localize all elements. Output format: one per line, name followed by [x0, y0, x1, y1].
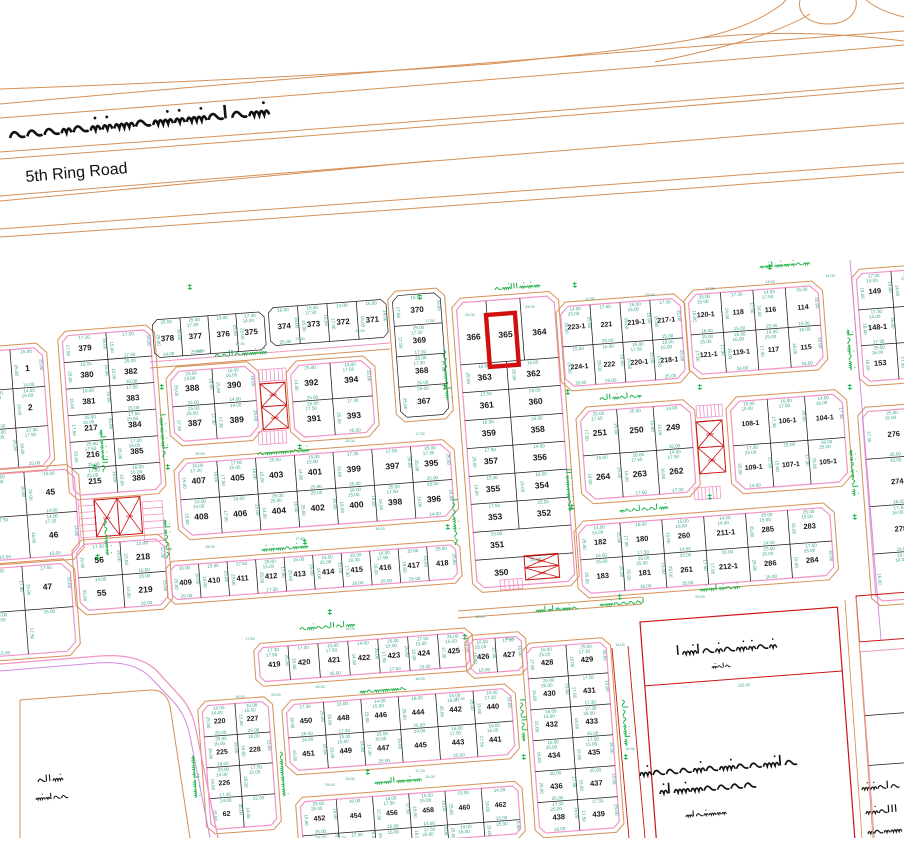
svg-text:25.00: 25.00	[336, 412, 342, 424]
svg-text:16.00: 16.00	[536, 751, 542, 763]
svg-text:25.00: 25.00	[349, 427, 361, 433]
svg-text:15.00: 15.00	[798, 320, 810, 326]
svg-text:15.00: 15.00	[457, 790, 469, 796]
svg-text:17.30: 17.30	[376, 809, 382, 821]
svg-text:16.00: 16.00	[675, 523, 687, 529]
svg-text:14.00: 14.00	[163, 351, 175, 357]
svg-text:363: 363	[477, 372, 492, 383]
svg-text:250: 250	[629, 424, 644, 435]
svg-text:25.00: 25.00	[402, 398, 408, 410]
svg-text:17.30: 17.30	[771, 416, 777, 428]
svg-text:17.30: 17.30	[415, 432, 425, 436]
svg-text:356: 356	[532, 452, 547, 463]
svg-text:25.00: 25.00	[819, 444, 831, 450]
svg-text:15.00: 15.00	[109, 341, 115, 353]
svg-text:261: 261	[680, 565, 693, 575]
svg-text:413: 413	[293, 569, 306, 579]
svg-text:17.30: 17.30	[759, 345, 765, 357]
svg-text:15.00: 15.00	[322, 743, 328, 755]
svg-text:379: 379	[78, 343, 93, 353]
svg-text:260: 260	[677, 531, 690, 541]
svg-text:16.00: 16.00	[202, 576, 208, 588]
svg-text:372: 372	[336, 317, 351, 327]
svg-text:398: 398	[388, 496, 403, 507]
svg-text:25.00: 25.00	[270, 498, 282, 504]
svg-text:16.00: 16.00	[625, 747, 635, 751]
svg-text:276: 276	[887, 429, 900, 439]
svg-text:108-1: 108-1	[741, 420, 759, 428]
svg-text:17.50: 17.50	[351, 832, 363, 838]
svg-text:225: 225	[216, 749, 228, 757]
svg-text:16.00: 16.00	[83, 419, 95, 425]
svg-text:25.00: 25.00	[269, 457, 281, 463]
svg-text:431: 431	[583, 685, 596, 695]
svg-text:263: 263	[632, 468, 647, 479]
svg-text:17.30: 17.30	[491, 647, 497, 659]
svg-text:17.50: 17.50	[126, 384, 138, 390]
svg-text:221: 221	[600, 321, 612, 329]
svg-text:25.00: 25.00	[749, 526, 755, 538]
svg-text:451: 451	[302, 748, 315, 758]
svg-text:25.00: 25.00	[680, 552, 692, 558]
svg-text:109-1: 109-1	[745, 464, 763, 472]
svg-text:16.00: 16.00	[893, 499, 904, 505]
svg-text:445: 445	[414, 740, 427, 750]
svg-text:15.00: 15.00	[43, 470, 55, 476]
svg-text:15.00: 15.00	[576, 748, 582, 760]
svg-text:421: 421	[328, 655, 341, 665]
svg-text:25.00: 25.00	[609, 742, 615, 754]
svg-text:25.00: 25.00	[259, 572, 265, 584]
svg-text:15.00: 15.00	[402, 561, 408, 573]
svg-text:17.30: 17.30	[571, 776, 577, 788]
svg-text:15.00: 15.00	[734, 325, 746, 331]
svg-text:25.00: 25.00	[87, 472, 99, 478]
svg-text:25.00: 25.00	[349, 481, 361, 487]
svg-text:15.00: 15.00	[660, 562, 666, 574]
svg-text:17.50: 17.50	[398, 337, 404, 349]
svg-text:14.00: 14.00	[533, 443, 545, 449]
svg-text:116: 116	[765, 306, 777, 314]
svg-text:25.00: 25.00	[311, 806, 323, 812]
svg-text:391: 391	[307, 413, 322, 424]
svg-text:180: 180	[636, 534, 649, 544]
svg-text:15.00: 15.00	[423, 555, 429, 567]
svg-text:16.00: 16.00	[624, 470, 630, 482]
svg-text:46: 46	[49, 529, 59, 540]
svg-text:25.00: 25.00	[525, 305, 535, 309]
svg-text:15.00: 15.00	[139, 573, 151, 579]
svg-text:17.30: 17.30	[592, 798, 604, 804]
svg-text:15.00: 15.00	[665, 532, 671, 544]
svg-text:17.50: 17.50	[124, 352, 136, 358]
svg-text:17.50: 17.50	[631, 457, 643, 463]
svg-text:17.30: 17.30	[413, 360, 425, 366]
svg-text:25.00: 25.00	[378, 833, 384, 838]
svg-text:25.00: 25.00	[12, 439, 18, 451]
svg-text:16.00: 16.00	[436, 299, 442, 311]
svg-text:17.30: 17.30	[411, 330, 423, 336]
svg-text:15.00: 15.00	[345, 439, 355, 443]
svg-text:378: 378	[160, 333, 175, 343]
svg-text:25.00: 25.00	[422, 831, 434, 837]
svg-text:367: 367	[417, 396, 432, 406]
svg-text:16.00: 16.00	[872, 349, 884, 355]
svg-text:25.00: 25.00	[205, 545, 215, 549]
svg-text:25.00: 25.00	[126, 416, 138, 422]
svg-text:15.00: 15.00	[596, 455, 608, 461]
svg-text:25.00: 25.00	[311, 490, 323, 496]
svg-text:16.00: 16.00	[176, 329, 182, 341]
svg-text:16.00: 16.00	[250, 375, 256, 387]
svg-text:25.00: 25.00	[581, 538, 587, 550]
svg-text:15.00: 15.00	[412, 806, 418, 818]
svg-text:15.00: 15.00	[411, 649, 417, 661]
svg-text:381: 381	[82, 396, 97, 406]
svg-text:362: 362	[526, 368, 541, 379]
svg-text:17.50: 17.50	[488, 503, 500, 509]
svg-text:15.00: 15.00	[657, 424, 663, 436]
svg-text:25.00: 25.00	[629, 408, 641, 414]
svg-text:14.00: 14.00	[193, 503, 205, 509]
svg-text:25.00: 25.00	[616, 467, 622, 479]
svg-text:25.00: 25.00	[239, 328, 245, 340]
svg-text:25.00: 25.00	[366, 370, 372, 382]
svg-text:16.00: 16.00	[80, 361, 92, 367]
svg-text:17.30: 17.30	[623, 535, 629, 547]
svg-text:16.00: 16.00	[378, 498, 384, 510]
svg-text:17.30: 17.30	[672, 487, 684, 493]
svg-text:370: 370	[410, 305, 425, 315]
svg-text:15.00: 15.00	[534, 720, 540, 732]
svg-text:15.00: 15.00	[38, 359, 44, 371]
svg-text:15.00: 15.00	[682, 580, 694, 586]
svg-text:25.00: 25.00	[745, 449, 757, 455]
svg-text:25.00: 25.00	[402, 708, 408, 720]
svg-text:25.00: 25.00	[453, 752, 465, 758]
svg-text:118: 118	[732, 309, 744, 317]
svg-text:15.00: 15.00	[187, 399, 199, 405]
svg-text:14.00: 14.00	[574, 717, 580, 729]
svg-text:368: 368	[415, 366, 430, 376]
svg-text:17.30: 17.30	[705, 287, 715, 291]
svg-text:454: 454	[350, 812, 362, 820]
svg-text:360: 360	[528, 396, 543, 407]
svg-text:14.00: 14.00	[679, 546, 691, 552]
svg-text:17.50: 17.50	[702, 559, 708, 571]
svg-text:16.00: 16.00	[277, 307, 289, 313]
svg-text:25.00: 25.00	[300, 504, 306, 516]
svg-text:17.30: 17.30	[347, 451, 359, 457]
svg-text:14.00: 14.00	[345, 627, 355, 631]
svg-text:15.00: 15.00	[372, 703, 384, 709]
svg-text:25.00: 25.00	[541, 682, 553, 688]
svg-text:16.00: 16.00	[336, 701, 348, 707]
svg-text:16.00: 16.00	[660, 344, 672, 350]
svg-text:450: 450	[299, 716, 312, 726]
svg-text:107-1: 107-1	[782, 461, 800, 469]
svg-text:25.00: 25.00	[700, 339, 712, 345]
svg-text:437: 437	[590, 778, 603, 788]
svg-text:14.00: 14.00	[242, 318, 254, 324]
svg-text:17.50: 17.50	[176, 420, 182, 432]
svg-text:15.00: 15.00	[543, 713, 555, 719]
svg-text:25.00: 25.00	[156, 334, 162, 346]
svg-text:17.30: 17.30	[297, 645, 309, 651]
svg-text:428: 428	[541, 657, 554, 667]
svg-text:16.00: 16.00	[102, 338, 108, 350]
svg-text:408: 408	[194, 511, 209, 522]
svg-text:25.00: 25.00	[475, 644, 487, 650]
svg-text:17.30: 17.30	[659, 299, 671, 305]
svg-text:415: 415	[350, 565, 363, 575]
svg-text:14.00: 14.00	[46, 507, 58, 513]
svg-text:15.00: 15.00	[397, 738, 403, 750]
svg-text:14.00: 14.00	[294, 379, 300, 391]
svg-text:17.30: 17.30	[345, 565, 351, 577]
svg-text:15.00: 15.00	[535, 471, 547, 477]
svg-text:15.00: 15.00	[619, 354, 625, 366]
svg-text:14.00: 14.00	[724, 308, 730, 320]
svg-text:17.50: 17.50	[389, 666, 401, 672]
svg-text:15.00: 15.00	[119, 474, 125, 486]
svg-text:25.00: 25.00	[315, 835, 327, 838]
svg-text:17.50: 17.50	[40, 565, 52, 571]
svg-text:149: 149	[868, 286, 881, 296]
svg-text:352: 352	[537, 507, 552, 518]
svg-text:17.30: 17.30	[0, 423, 6, 429]
svg-text:443: 443	[451, 737, 464, 747]
svg-text:375: 375	[244, 327, 259, 337]
svg-text:388: 388	[185, 382, 200, 393]
svg-text:117: 117	[768, 346, 780, 354]
svg-text:106-1: 106-1	[778, 417, 796, 425]
svg-text:14.00: 14.00	[749, 482, 761, 488]
svg-text:402: 402	[310, 502, 325, 513]
svg-text:17.30: 17.30	[405, 803, 411, 815]
svg-text:14.00: 14.00	[485, 801, 491, 813]
svg-text:25.00: 25.00	[254, 504, 260, 516]
svg-text:285: 285	[761, 524, 774, 534]
svg-text:15.00: 15.00	[266, 739, 272, 751]
svg-text:25.00: 25.00	[334, 832, 340, 838]
svg-text:16.00: 16.00	[248, 733, 260, 739]
svg-text:25.00: 25.00	[288, 570, 294, 582]
svg-text:15.00: 15.00	[329, 747, 335, 759]
svg-text:219: 219	[138, 584, 153, 595]
svg-text:15.00: 15.00	[585, 741, 597, 747]
svg-text:16.00: 16.00	[360, 316, 366, 328]
svg-text:14.00: 14.00	[298, 468, 304, 480]
svg-text:25.00: 25.00	[695, 595, 705, 599]
svg-text:274: 274	[891, 476, 904, 486]
svg-text:25.00: 25.00	[804, 548, 816, 554]
svg-text:15.00: 15.00	[49, 550, 61, 556]
svg-text:358: 358	[530, 424, 545, 435]
svg-text:406: 406	[233, 508, 248, 519]
svg-text:25.00: 25.00	[253, 410, 259, 422]
svg-text:417: 417	[407, 560, 420, 570]
svg-text:17.50: 17.50	[767, 457, 773, 469]
svg-text:447: 447	[377, 743, 390, 753]
svg-text:25.00: 25.00	[407, 456, 413, 468]
svg-text:17.30: 17.30	[441, 647, 447, 659]
svg-text:25.00: 25.00	[448, 803, 454, 815]
svg-text:25.00: 25.00	[465, 313, 475, 317]
svg-text:17.50: 17.50	[223, 510, 229, 522]
svg-text:16.00: 16.00	[69, 398, 75, 410]
svg-text:16.00: 16.00	[701, 328, 713, 334]
svg-text:17.30: 17.30	[804, 454, 810, 466]
svg-text:25.00: 25.00	[271, 693, 281, 697]
svg-text:17.50: 17.50	[305, 405, 317, 411]
svg-text:15.00: 15.00	[207, 563, 219, 569]
svg-text:383: 383	[126, 393, 141, 403]
svg-text:119-1: 119-1	[732, 349, 750, 357]
svg-text:25.00: 25.00	[645, 293, 655, 297]
svg-text:25.00: 25.00	[43, 609, 55, 615]
svg-text:25.00: 25.00	[116, 550, 122, 562]
svg-text:15.00: 15.00	[303, 814, 309, 826]
svg-text:211-1: 211-1	[716, 527, 735, 537]
svg-text:17.50: 17.50	[582, 674, 594, 680]
svg-text:17.30: 17.30	[330, 318, 336, 330]
svg-text:14.00: 14.00	[474, 484, 480, 496]
svg-text:GOV: GOV	[269, 393, 278, 398]
svg-text:17.30: 17.30	[266, 586, 278, 592]
svg-text:25.00: 25.00	[420, 797, 432, 803]
svg-text:16.00: 16.00	[892, 509, 904, 515]
svg-text:25.00: 25.00	[28, 489, 34, 501]
svg-text:15.00: 15.00	[259, 471, 265, 483]
svg-text:15.00: 15.00	[26, 584, 32, 596]
svg-text:15.00: 15.00	[126, 378, 138, 384]
svg-text:15.00: 15.00	[253, 795, 265, 801]
svg-text:17.50: 17.50	[236, 561, 248, 567]
svg-text:15.00: 15.00	[306, 459, 318, 465]
svg-text:15.00: 15.00	[262, 563, 274, 569]
svg-text:15.00: 15.00	[423, 820, 435, 826]
svg-text:14.00: 14.00	[763, 540, 775, 546]
svg-text:14.00: 14.00	[351, 653, 357, 665]
svg-text:17.30: 17.30	[160, 547, 166, 559]
svg-text:14.00: 14.00	[216, 772, 228, 778]
svg-text:25.00: 25.00	[564, 322, 570, 334]
svg-text:14.00: 14.00	[825, 274, 835, 278]
svg-text:376: 376	[216, 329, 231, 339]
svg-text:355: 355	[486, 483, 501, 494]
svg-text:17.50: 17.50	[630, 346, 642, 352]
svg-text:433: 433	[585, 716, 598, 726]
svg-text:15.00: 15.00	[336, 465, 342, 477]
svg-text:15.00: 15.00	[375, 736, 387, 742]
svg-text:15.00: 15.00	[490, 531, 502, 537]
svg-text:371: 371	[365, 315, 380, 325]
svg-text:373: 373	[307, 319, 322, 329]
svg-text:17.30: 17.30	[484, 695, 496, 701]
svg-text:416: 416	[379, 562, 392, 572]
svg-text:15.00: 15.00	[0, 554, 12, 560]
svg-text:17.30: 17.30	[347, 397, 359, 403]
svg-text:25.00: 25.00	[205, 717, 211, 729]
svg-text:365: 365	[498, 329, 513, 340]
svg-text:14.00: 14.00	[443, 824, 449, 836]
svg-text:25.00: 25.00	[619, 565, 625, 577]
svg-text:14.00: 14.00	[229, 396, 241, 402]
svg-text:25.00: 25.00	[160, 319, 172, 325]
svg-text:17.50: 17.50	[584, 429, 590, 441]
svg-text:262: 262	[669, 465, 684, 476]
svg-text:15.00: 15.00	[662, 333, 674, 339]
svg-text:17.50: 17.50	[599, 304, 611, 310]
svg-text:25.00: 25.00	[186, 410, 198, 416]
svg-text:411: 411	[236, 573, 249, 583]
svg-text:14.00: 14.00	[73, 525, 79, 537]
svg-text:434: 434	[548, 750, 562, 760]
svg-text:17.30: 17.30	[866, 431, 872, 443]
svg-text:15.00: 15.00	[627, 358, 633, 370]
svg-text:17.50: 17.50	[479, 736, 485, 748]
svg-text:14.00: 14.00	[429, 511, 441, 517]
svg-text:16.00: 16.00	[225, 372, 237, 378]
svg-text:25.00: 25.00	[14, 364, 20, 376]
svg-text:25.00: 25.00	[417, 385, 429, 391]
svg-text:16.00: 16.00	[315, 685, 325, 689]
svg-text:25.00: 25.00	[472, 456, 478, 468]
svg-text:25.00: 25.00	[310, 484, 322, 490]
svg-text:397: 397	[385, 460, 400, 471]
svg-text:62: 62	[223, 811, 231, 819]
svg-text:16.00: 16.00	[627, 306, 639, 312]
svg-text:422: 422	[357, 653, 370, 663]
svg-text:15.00: 15.00	[385, 643, 397, 649]
svg-text:GOV: GOV	[271, 416, 280, 421]
svg-text:25.00: 25.00	[586, 316, 592, 328]
svg-text:419: 419	[268, 659, 281, 669]
svg-text:14.00: 14.00	[336, 303, 348, 309]
svg-text:16.00: 16.00	[339, 501, 345, 513]
svg-text:16.00: 16.00	[737, 365, 749, 371]
svg-text:25.00: 25.00	[413, 722, 425, 728]
svg-text:17.50: 17.50	[440, 360, 446, 372]
svg-text:361: 361	[479, 399, 494, 410]
svg-text:183: 183	[596, 571, 609, 581]
svg-text:392: 392	[304, 377, 319, 388]
svg-text:16.00: 16.00	[349, 798, 361, 804]
svg-text:14.00: 14.00	[382, 310, 388, 322]
svg-text:25.00: 25.00	[232, 324, 238, 336]
svg-text:17.30: 17.30	[92, 543, 104, 549]
svg-text:251: 251	[592, 427, 607, 438]
svg-text:15.00: 15.00	[427, 481, 439, 487]
svg-text:25.00: 25.00	[309, 564, 315, 576]
svg-text:15.00: 15.00	[475, 615, 485, 619]
svg-text:15.00: 15.00	[345, 777, 355, 781]
svg-text:25.00: 25.00	[624, 318, 630, 330]
svg-text:15.00: 15.00	[692, 310, 698, 322]
svg-text:16.00: 16.00	[554, 826, 566, 832]
svg-text:17.30: 17.30	[45, 518, 57, 524]
svg-text:17.30: 17.30	[731, 291, 743, 297]
svg-text:16.00: 16.00	[66, 576, 72, 588]
svg-text:25.00: 25.00	[374, 648, 380, 660]
svg-text:121-1: 121-1	[700, 351, 718, 359]
svg-text:15.00: 15.00	[653, 315, 659, 327]
svg-text:420: 420	[298, 657, 311, 667]
svg-text:17.50: 17.50	[266, 652, 278, 658]
svg-text:17.30: 17.30	[187, 322, 199, 328]
svg-text:15.00: 15.00	[793, 556, 799, 568]
